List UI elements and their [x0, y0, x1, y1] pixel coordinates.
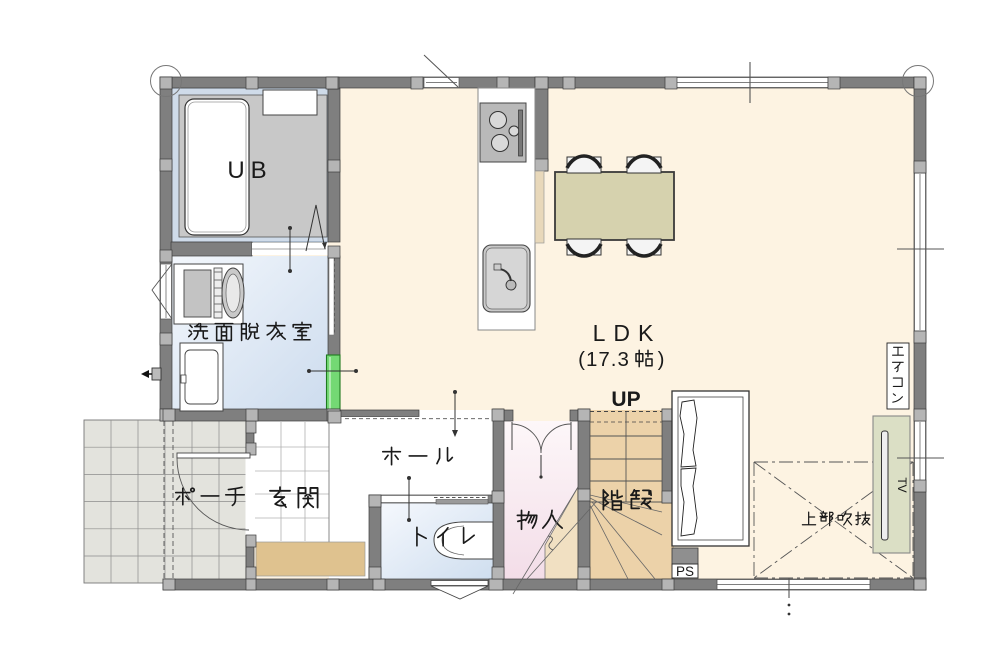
svg-text:): ) — [658, 348, 665, 371]
svg-text:UP: UP — [611, 388, 640, 411]
svg-text:UB: UB — [227, 157, 272, 184]
svg-text:LDK: LDK — [593, 320, 662, 346]
svg-text:PS: PS — [676, 564, 694, 579]
svg-text:TV: TV — [895, 477, 909, 492]
svg-text:(17.3: (17.3 — [578, 348, 630, 371]
